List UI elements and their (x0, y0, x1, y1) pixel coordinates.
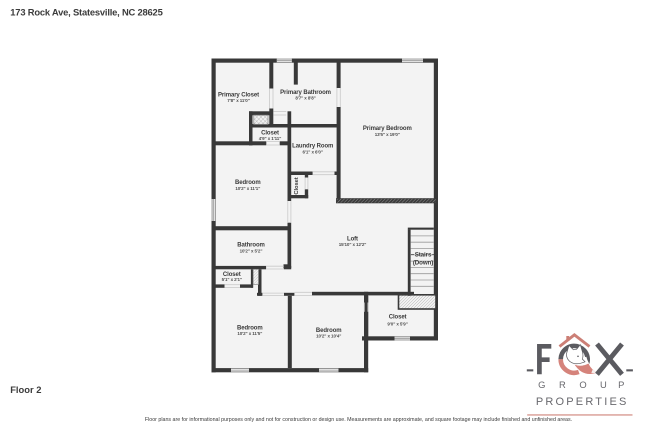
svg-text:10'2" x 5'2": 10'2" x 5'2" (240, 249, 263, 254)
svg-text:15'10" x 12'2": 15'10" x 12'2" (339, 242, 367, 247)
svg-text:173 Rock Ave, Statesville, NC: 173 Rock Ave, Statesville, NC 28625 (10, 7, 162, 18)
svg-text:4'9" x 1'11": 4'9" x 1'11" (259, 136, 281, 141)
svg-text:10'2" x 10'4": 10'2" x 10'4" (316, 333, 341, 338)
svg-text:(Down): (Down) (413, 259, 433, 266)
svg-text:10'2" x 11'5": 10'2" x 11'5" (237, 331, 262, 336)
svg-text:P: P (618, 379, 624, 390)
svg-text:9'0" x 5'9": 9'0" x 5'9" (387, 321, 407, 326)
svg-text:5'1" x 2'1": 5'1" x 2'1" (222, 277, 242, 282)
svg-text:R: R (559, 379, 566, 390)
svg-text:8'7" x 8'8": 8'7" x 8'8" (295, 96, 315, 101)
svg-text:6'1" x 6'0": 6'1" x 6'0" (303, 149, 323, 154)
svg-text:O: O (579, 379, 586, 390)
svg-text:Floor plans are for informatio: Floor plans are for informational purpos… (145, 417, 572, 423)
svg-text:PROPERTIES: PROPERTIES (536, 396, 629, 408)
svg-text:Floor 2: Floor 2 (10, 384, 41, 395)
svg-text:7'8" x 11'0": 7'8" x 11'0" (227, 98, 249, 103)
svg-text:U: U (600, 379, 607, 390)
svg-text:10'2" x 11'1": 10'2" x 11'1" (235, 186, 260, 191)
svg-text:Stairs: Stairs (415, 252, 432, 259)
svg-text:Closet: Closet (389, 315, 407, 321)
svg-text:Closet: Closet (294, 177, 300, 194)
svg-text:G: G (538, 379, 545, 390)
svg-text:13'5" x 19'0": 13'5" x 19'0" (375, 132, 400, 137)
